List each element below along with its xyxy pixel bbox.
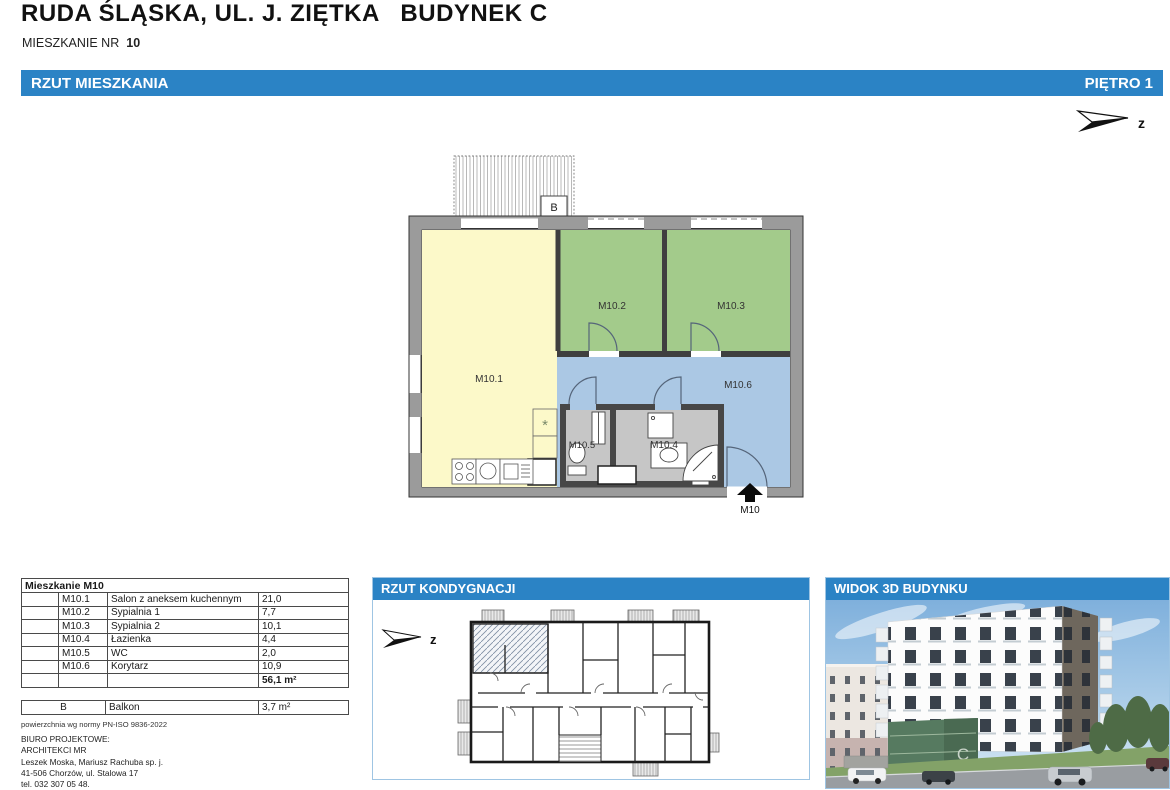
- cell-code: M10.2: [59, 606, 108, 620]
- main-building: C: [876, 606, 1112, 771]
- cell-name: Sypialnia 1: [108, 606, 259, 620]
- cell-code: M10.5: [59, 647, 108, 661]
- section-bar-left: RZUT MIESZKANIA: [31, 75, 169, 92]
- entrance-label: M10: [740, 505, 760, 516]
- cell-code: M10.1: [59, 593, 108, 607]
- design-office-block: BIURO PROJEKTOWE: ARCHITEKCI MR Leszek M…: [21, 734, 163, 790]
- area-table-title: Mieszkanie M10: [22, 579, 349, 593]
- table-row: M10.6Korytarz10,9: [22, 660, 349, 674]
- table-row: M10.4Łazienka4,4: [22, 633, 349, 647]
- cell-code: M10.6: [59, 660, 108, 674]
- kitchen-fixtures: [452, 459, 533, 484]
- cell-name: Łazienka: [108, 633, 259, 647]
- table-row: M10.2Sypialnia 17,7: [22, 606, 349, 620]
- view-3d-panel: WIDOK 3D BUDYNKU: [825, 577, 1170, 789]
- cell-name: Korytarz: [108, 660, 259, 674]
- stairwell: [559, 735, 601, 762]
- office-address: 41-506 Chorzów, ul. Stalowa 17: [21, 768, 163, 779]
- balcony-label: B: [550, 202, 557, 214]
- section-bar-right: PIĘTRO 1: [1085, 75, 1153, 92]
- retaining-wall: [844, 756, 888, 768]
- apartment-number: 10: [126, 36, 140, 50]
- cell-code: B: [22, 701, 106, 715]
- office-name: ARCHITEKCI MR: [21, 745, 163, 756]
- floor-layout-panel: RZUT KONDYGNACJI z: [372, 577, 810, 780]
- cell-area: 7,7: [259, 606, 349, 620]
- table-row: M10.5WC2,0: [22, 647, 349, 661]
- cabinet: [598, 466, 636, 484]
- plan-sheet: { "document": { "title": "RUDA ŚLĄSKA, U…: [0, 0, 1170, 785]
- apartment-floor-plan: B *: [390, 140, 810, 518]
- balcony: B: [454, 156, 574, 218]
- office-partners: Leszek Moska, Mariusz Rachuba sp. j.: [21, 757, 163, 768]
- cell-code: M10.3: [59, 620, 108, 634]
- label-m10-3: M10.3: [717, 301, 745, 312]
- highlighted-apartment: [473, 624, 548, 673]
- total-area: 56,1 m²: [259, 674, 349, 688]
- panel-north-label: z: [430, 632, 437, 647]
- table-row: B Balkon 3,7 m²: [22, 701, 349, 715]
- panel-north-arrow-icon: z: [383, 630, 437, 648]
- north-arrow-icon: z: [1072, 106, 1162, 138]
- balcony-table: B Balkon 3,7 m²: [21, 700, 349, 715]
- apartment-label: MIESZKANIE NR: [22, 36, 119, 50]
- area-table-total-row: 56,1 m²: [22, 674, 349, 688]
- cell-area: 2,0: [259, 647, 349, 661]
- table-row: M10.1Salon z aneksem kuchennym21,0: [22, 593, 349, 607]
- cell-code: M10.4: [59, 633, 108, 647]
- label-m10-2: M10.2: [598, 301, 626, 312]
- cell-name: Sypialnia 2: [108, 620, 259, 634]
- office-label: BIURO PROJEKTOWE:: [21, 734, 163, 745]
- apartment-subtitle: MIESZKANIE NR10: [22, 36, 140, 50]
- floor-layout-header: RZUT KONDYGNACJI: [373, 578, 809, 600]
- cell-area: 3,7 m²: [259, 701, 349, 715]
- area-table: Mieszkanie M10 M10.1Salon z aneksem kuch…: [21, 578, 349, 688]
- cell-area: 21,0: [259, 593, 349, 607]
- floor-layout-plan: z: [373, 600, 809, 779]
- cell-name: Balkon: [106, 701, 259, 715]
- north-label: z: [1138, 115, 1145, 131]
- table-row: M10.3Sypialnia 210,1: [22, 620, 349, 634]
- cell-name: WC: [108, 647, 259, 661]
- label-m10-6: M10.6: [724, 380, 752, 391]
- cell-area: 4,4: [259, 633, 349, 647]
- cell-name: Salon z aneksem kuchennym: [108, 593, 259, 607]
- entrance: M10: [727, 483, 767, 516]
- area-table-header: Mieszkanie M10: [22, 579, 349, 593]
- section-bar: RZUT MIESZKANIA PIĘTRO 1: [21, 70, 1163, 96]
- cell-area: 10,1: [259, 620, 349, 634]
- view-3d-header: WIDOK 3D BUDYNKU: [826, 578, 1169, 600]
- page-title: RUDA ŚLĄSKA, UL. J. ZIĘTKA BUDYNEK C: [21, 0, 548, 28]
- room-bedroom2: [667, 230, 790, 351]
- norm-note: powierzchnia wg normy PN-ISO 9836-2022: [21, 720, 167, 729]
- label-m10-4: M10.4: [650, 440, 678, 451]
- label-m10-5: M10.5: [569, 440, 595, 451]
- label-m10-1: M10.1: [475, 374, 503, 385]
- kitchen-symbol: *: [542, 417, 548, 434]
- building-3d-view: C: [826, 600, 1169, 788]
- cell-area: 10,9: [259, 660, 349, 674]
